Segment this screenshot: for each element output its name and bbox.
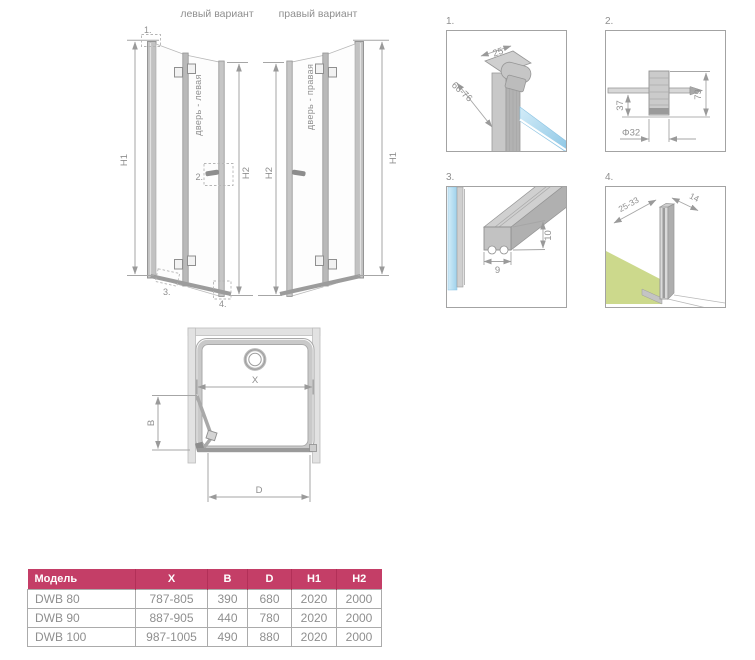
dim-h1-left: H1 — [119, 154, 130, 166]
dim-9: 9 — [495, 265, 500, 276]
dim-37: 37 — [615, 100, 626, 111]
col-header-model: Модель — [28, 569, 136, 590]
cell-model: DWB 90 — [28, 609, 136, 628]
cell-model: DWB 100 — [28, 628, 136, 647]
cell-h2: 2000 — [337, 609, 382, 628]
callout-4-label: 4. — [219, 299, 227, 309]
cell-d: 780 — [248, 609, 292, 628]
model-spec-table: Модель X B D H1 H2 DWB 80 787-805 390 68… — [27, 569, 382, 647]
detail-2-number: 2. — [605, 15, 730, 30]
dim-diameter-32: Φ32 — [622, 128, 640, 139]
table-row: DWB 80 787-805 390 680 2020 2000 — [28, 590, 382, 609]
dim-h1-right: H1 — [388, 152, 399, 164]
table-row: DWB 100 987-1005 490 880 2020 2000 — [28, 628, 382, 647]
drain — [245, 350, 265, 370]
col-header-h1: H1 — [292, 569, 337, 590]
col-header-d: D — [248, 569, 292, 590]
detail-1-number: 1. — [446, 15, 571, 30]
adjustment-profile-drawing: 25-33 14 — [606, 187, 725, 307]
left-variant-title: левый вариант — [180, 8, 254, 20]
dim-h2-right: H2 — [264, 167, 275, 179]
glass-panel — [448, 187, 457, 290]
plan-view-diagram: X B D — [140, 318, 370, 518]
dim-79: 79 — [693, 89, 704, 100]
detail-3-box: 9 10 — [446, 186, 567, 308]
detail-2-box: 37 79 Φ32 — [605, 30, 726, 152]
detail-2: 2. — [605, 15, 730, 152]
cell-b: 440 — [208, 609, 248, 628]
table-header-row: Модель X B D H1 H2 — [28, 569, 382, 590]
cell-d: 880 — [248, 628, 292, 647]
cell-x: 887-905 — [136, 609, 208, 628]
detail-4-number: 4. — [605, 171, 730, 186]
detail-3: 3. — [446, 171, 571, 308]
shower-door-spec-sheet: 1. 2. 3. 4. левый вариант правый вариант… — [0, 0, 755, 660]
detail-4: 4. 25-33 14 — [605, 171, 730, 308]
door-elevations-diagram: 1. 2. 3. 4. левый вариант правый вариант… — [0, 0, 440, 320]
right-variant-title: правый вариант — [279, 8, 358, 20]
cell-h1: 2020 — [292, 590, 337, 609]
table-row: DWB 90 887-905 440 780 2020 2000 — [28, 609, 382, 628]
detail-1-box: 25 66-76 — [446, 30, 567, 152]
cell-model: DWB 80 — [28, 590, 136, 609]
handle-section-drawing: 37 79 Φ32 — [606, 31, 725, 151]
dim-x: X — [252, 375, 259, 386]
cell-h2: 2000 — [337, 628, 382, 647]
detail-4-box: 25-33 14 — [605, 186, 726, 308]
bottom-seal-section-drawing: 9 10 — [447, 187, 566, 307]
left-door-drawing — [148, 42, 232, 297]
door-left-label: дверь - левая — [193, 74, 203, 135]
callout-1-label: 1. — [144, 25, 152, 35]
detail-3-number: 3. — [446, 171, 571, 186]
dim-d: D — [256, 485, 263, 496]
cell-h1: 2020 — [292, 609, 337, 628]
detail-1: 1. — [446, 15, 571, 152]
cell-b: 490 — [208, 628, 248, 647]
callout-3-label: 3. — [163, 287, 171, 297]
cell-x: 787-805 — [136, 590, 208, 609]
cell-h1: 2020 — [292, 628, 337, 647]
dim-25-33: 25-33 — [617, 195, 641, 214]
callout-2-label: 2. — [195, 172, 203, 182]
col-header-x: X — [136, 569, 208, 590]
cell-d: 680 — [248, 590, 292, 609]
wall-profile-section-drawing: 25 66-76 — [447, 31, 566, 151]
cell-h2: 2000 — [337, 590, 382, 609]
dim-14: 14 — [688, 191, 701, 204]
cell-x: 987-1005 — [136, 628, 208, 647]
cell-b: 390 — [208, 590, 248, 609]
col-header-h2: H2 — [337, 569, 382, 590]
bottom-rail — [198, 448, 313, 452]
dim-10: 10 — [543, 230, 554, 241]
col-header-b: B — [208, 569, 248, 590]
dim-h2-left: H2 — [241, 167, 252, 179]
dim-b: B — [146, 420, 157, 426]
right-door-drawing — [280, 42, 364, 297]
door-right-label: дверь - правая — [305, 64, 315, 130]
